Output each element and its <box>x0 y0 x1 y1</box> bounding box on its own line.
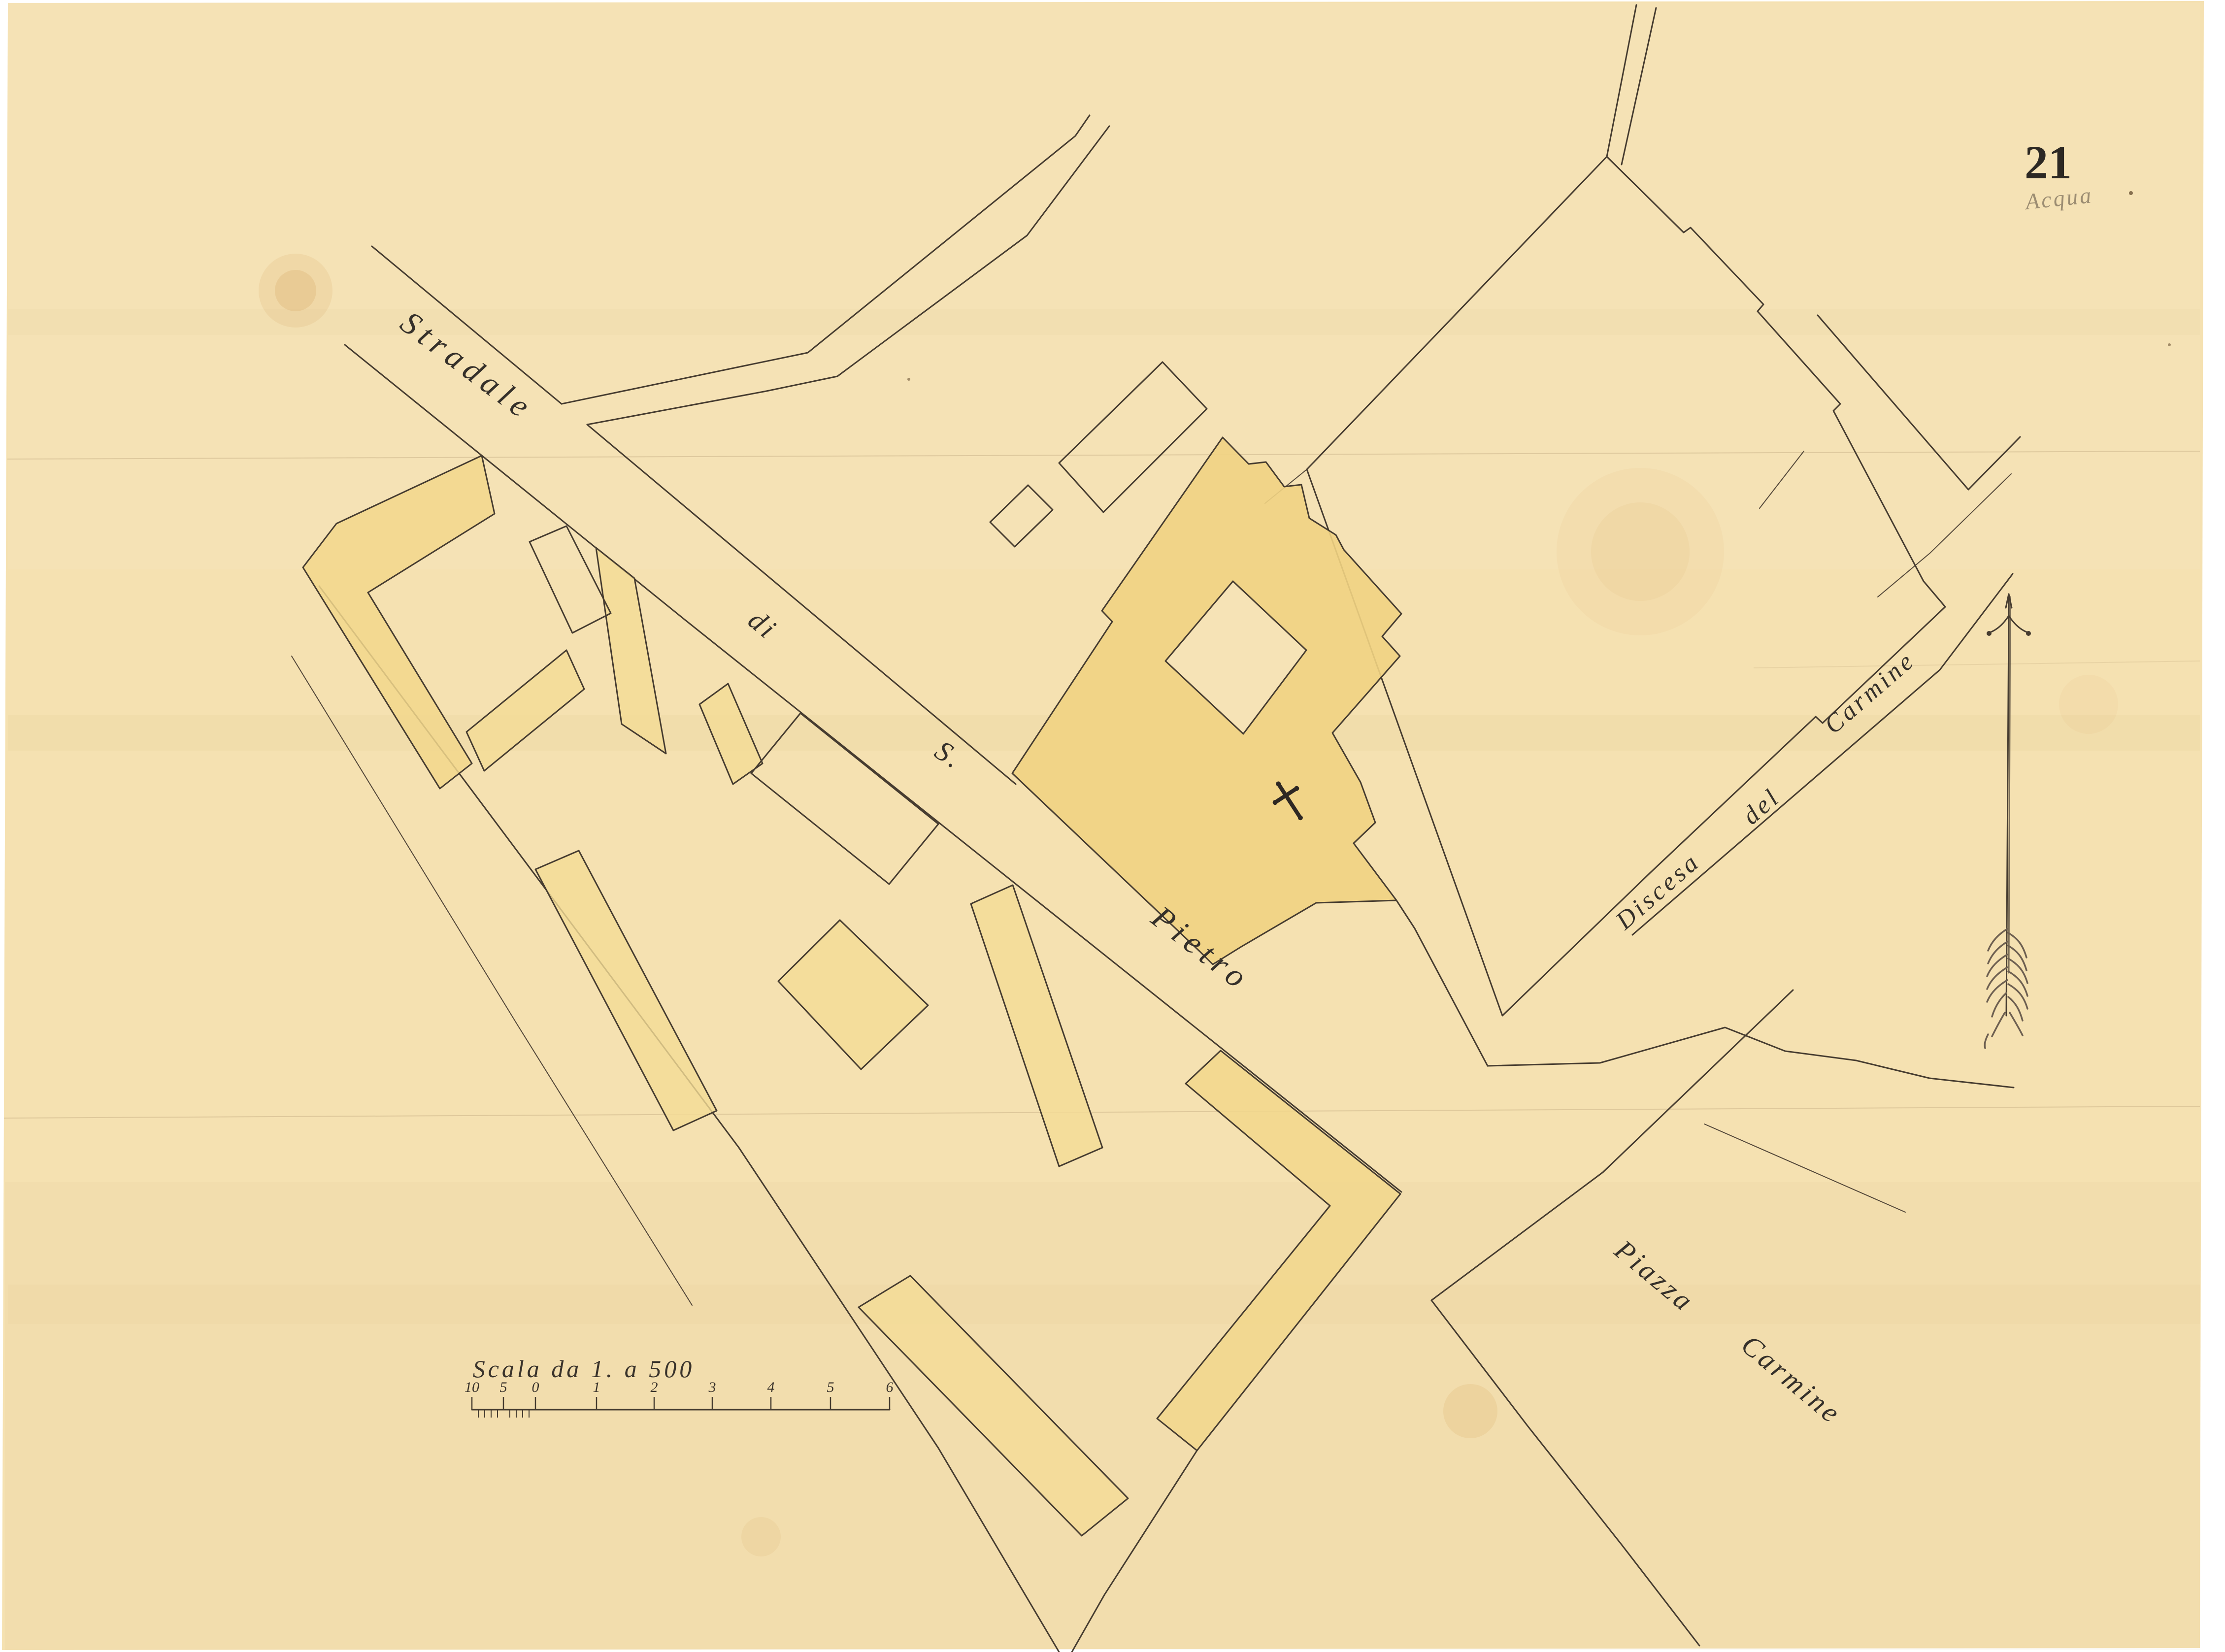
scale-tick-label: 1 <box>593 1379 600 1395</box>
scale-tick-label: 5 <box>827 1379 834 1395</box>
scale-title: Scala da 1. a 500 <box>473 1355 695 1383</box>
paper-shade-bottom <box>5 1182 2200 1650</box>
paper-shade-top <box>8 3 2200 569</box>
scale-tick-label: 2 <box>651 1379 658 1395</box>
plate-number: 21 <box>2025 136 2072 189</box>
scale-tick-label: 0 <box>532 1379 539 1395</box>
scale-tick-label: 3 <box>708 1379 716 1395</box>
paper-band-2 <box>8 1285 2200 1324</box>
map-canvas: Scala da 1. a 500 10 5 <box>0 0 2225 1652</box>
scale-tick-label: 4 <box>767 1379 775 1395</box>
scale-tick-label: 6 <box>886 1379 894 1395</box>
scale-tick-label: 5 <box>500 1379 507 1395</box>
scale-tick-label: 10 <box>465 1379 479 1395</box>
paper-band-3 <box>8 309 2200 335</box>
